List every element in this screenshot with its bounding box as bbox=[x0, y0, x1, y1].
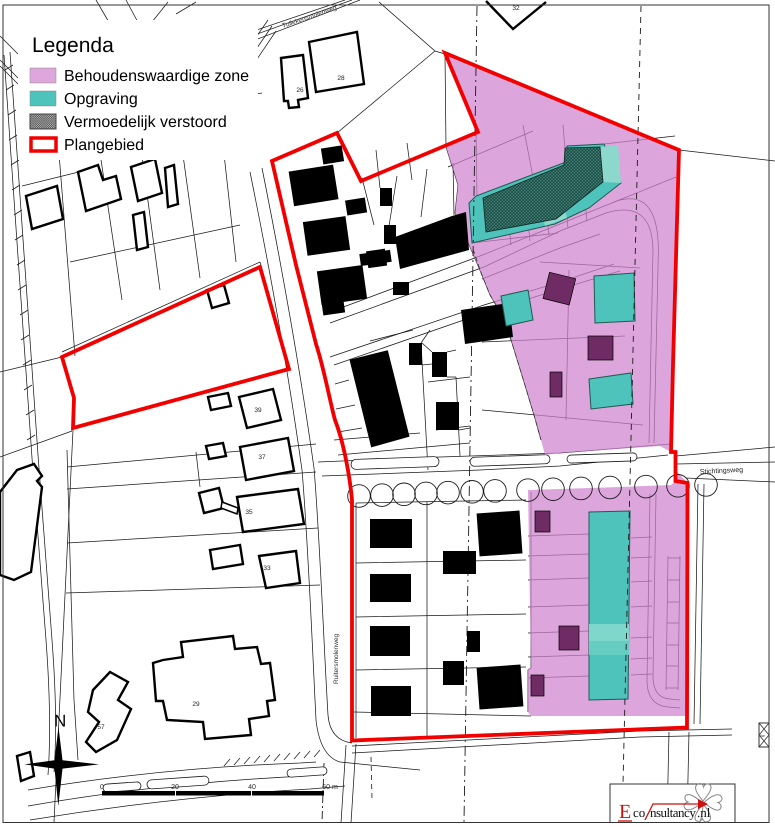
svg-text:Plangebied: Plangebied bbox=[64, 137, 144, 154]
svg-text:hw: hw bbox=[760, 734, 765, 738]
svg-text:60 m: 60 m bbox=[322, 784, 338, 791]
svg-text:Vermoedelijk verstoord: Vermoedelijk verstoord bbox=[64, 114, 227, 131]
svg-text:29: 29 bbox=[192, 701, 200, 708]
svg-text:Opgraving: Opgraving bbox=[64, 91, 138, 108]
svg-text:E: E bbox=[619, 801, 631, 823]
svg-text:32: 32 bbox=[512, 5, 520, 12]
svg-text:20: 20 bbox=[171, 784, 179, 791]
svg-text:57: 57 bbox=[97, 724, 105, 731]
svg-text:35: 35 bbox=[245, 509, 253, 516]
svg-text:N: N bbox=[54, 712, 66, 731]
svg-text:33: 33 bbox=[263, 565, 271, 572]
svg-text:39: 39 bbox=[254, 407, 262, 414]
svg-text:Legenda: Legenda bbox=[32, 34, 114, 57]
svg-text:nsultancy: nsultancy bbox=[650, 805, 696, 820]
svg-text:Behoudenswaardige zone: Behoudenswaardige zone bbox=[64, 68, 249, 85]
svg-text:37: 37 bbox=[258, 454, 266, 461]
svg-text:28: 28 bbox=[337, 75, 345, 82]
svg-text:26: 26 bbox=[296, 87, 304, 94]
svg-text:40: 40 bbox=[248, 784, 256, 791]
svg-text:0: 0 bbox=[100, 784, 104, 791]
svg-text:co: co bbox=[633, 805, 645, 820]
svg-text:Ruitersmolenweg: Ruitersmolenweg bbox=[333, 633, 340, 684]
